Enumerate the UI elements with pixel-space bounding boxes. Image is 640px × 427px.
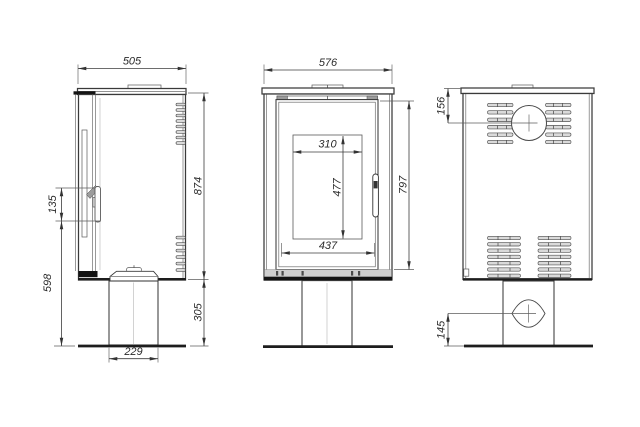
side-pedestal	[109, 265, 158, 345]
dim-side-body-height: 874	[188, 93, 209, 280]
side-body	[76, 95, 186, 281]
dim-label-156: 156	[436, 96, 448, 115]
dim-label-229: 229	[123, 346, 142, 358]
dim-label-874: 874	[193, 177, 205, 195]
back-top-plate	[461, 85, 594, 94]
back-pedestal	[448, 281, 554, 346]
front-door-handle	[373, 174, 379, 217]
stove-technical-drawing: 505 874 305 135 598 229	[0, 0, 640, 427]
dim-label-505: 505	[123, 56, 142, 68]
dim-side-handle-to-floor: 598	[42, 221, 75, 346]
front-bottom-edge	[264, 270, 392, 281]
dim-label-145: 145	[436, 320, 448, 339]
front-view: 576 310 477 437 797	[262, 57, 414, 347]
dim-label-437: 437	[319, 240, 338, 252]
dim-back-flue-offset: 156	[436, 89, 462, 124]
back-view: 156 145	[436, 85, 595, 346]
dim-label-135: 135	[47, 194, 59, 213]
dim-front-width: 576	[264, 57, 392, 84]
dim-label-310: 310	[318, 139, 337, 151]
front-door-lock	[374, 181, 378, 188]
side-top-plate	[74, 85, 187, 95]
dim-back-inlet-offset: 145	[436, 314, 465, 347]
back-vents-bottom-right	[538, 236, 571, 277]
dim-label-598: 598	[42, 273, 54, 292]
dim-side-pedestal-depth: 229	[109, 346, 158, 363]
dim-side-depth: 505	[78, 56, 186, 85]
dim-label-305: 305	[193, 302, 205, 321]
dim-label-576: 576	[319, 57, 338, 69]
dim-side-pedestal-height: 305	[190, 280, 209, 347]
front-pedestal	[302, 281, 352, 346]
back-vents-bottom-left	[488, 236, 521, 277]
dim-label-797: 797	[398, 175, 410, 194]
side-view: 505 874 305 135 598 229	[42, 56, 209, 363]
front-top-plate	[262, 85, 394, 94]
technical-drawing-page: 505 874 305 135 598 229	[0, 0, 640, 427]
dim-label-477: 477	[332, 177, 344, 196]
